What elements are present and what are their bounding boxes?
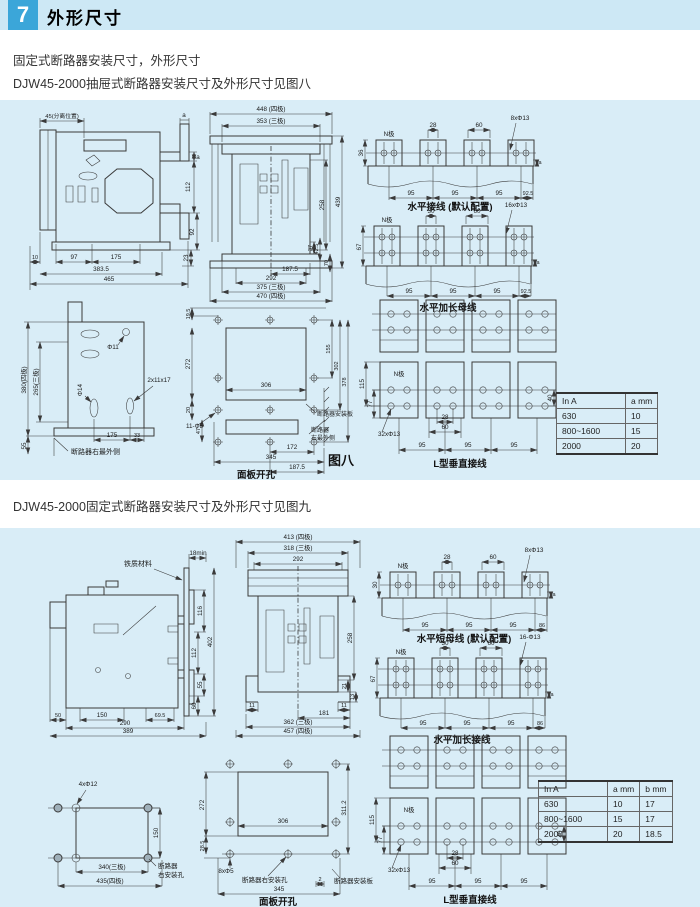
dim-label: 116 bbox=[197, 605, 204, 616]
dim-label: 16-Φ13 bbox=[519, 634, 541, 641]
drawing-caption: L型垂直接线 bbox=[443, 894, 497, 906]
dim-label: 95 bbox=[464, 442, 472, 449]
dim-label: 413 (四极) bbox=[283, 532, 312, 541]
dim-label: 172 bbox=[287, 444, 298, 451]
cell: 630 bbox=[539, 797, 608, 812]
dim-label: 28.5 bbox=[200, 841, 206, 852]
cell: 20 bbox=[608, 827, 640, 843]
dim-label: 95 bbox=[449, 288, 457, 295]
dim-label: 375 (三极) bbox=[256, 282, 285, 291]
dim-label: 95 bbox=[463, 720, 471, 727]
dim-label: 19.5 bbox=[186, 309, 192, 320]
dim-label: N极 bbox=[384, 129, 396, 138]
dim-label: 36 bbox=[358, 149, 365, 157]
dim-label: N极 bbox=[404, 805, 416, 814]
drawing-note: 断路器右安装孔 bbox=[242, 875, 288, 884]
cell: 800~1600 bbox=[557, 424, 626, 439]
dim-label: 86 bbox=[537, 721, 543, 727]
drawing-note: 断路器安装板 bbox=[317, 410, 353, 418]
dim-label: 95 bbox=[465, 622, 473, 629]
dim-label: 32xΦ13 bbox=[378, 431, 401, 438]
dim-label: 457 (四极) bbox=[283, 726, 312, 735]
dim-label: 95 bbox=[405, 288, 413, 295]
dim-label: 92 bbox=[189, 228, 196, 236]
dim-label: 380(四极) bbox=[19, 366, 28, 393]
dim-label: 21 bbox=[342, 683, 348, 689]
drawing-note: 断路器 bbox=[158, 861, 178, 870]
dim-label: 60 bbox=[487, 640, 495, 647]
dim-label: N极 bbox=[382, 215, 394, 224]
dim-label: 389 bbox=[123, 728, 134, 735]
dim-label: 33 bbox=[134, 433, 140, 439]
dim-label: 70 bbox=[324, 260, 330, 266]
dim-label: 60 bbox=[473, 208, 481, 215]
dim-label: 8xΦ13 bbox=[525, 547, 544, 554]
cell: 800~1600 bbox=[539, 812, 608, 827]
cell: a mm bbox=[626, 393, 658, 409]
dim-label: 2 bbox=[318, 877, 321, 883]
cell: 630 bbox=[557, 409, 626, 424]
dim-label: 435(四极) bbox=[96, 876, 123, 885]
dim-label: 28 bbox=[429, 122, 437, 129]
dim-label: 28 bbox=[443, 554, 451, 561]
cell: 18.5 bbox=[640, 827, 672, 843]
dim-label: 67 bbox=[356, 243, 363, 251]
dim-label: 95 bbox=[493, 288, 501, 295]
dim-label: 4xΦ12 bbox=[79, 781, 98, 788]
dim-label: 258 bbox=[319, 199, 326, 210]
dim-label: 292 bbox=[293, 556, 304, 563]
fig9-mounting-holes-drawing: 4xΦ12 150 340(三极) 435(四极) 断路器 右安装孔 bbox=[28, 760, 196, 900]
dim-label: 13 bbox=[350, 694, 356, 700]
dim-label: a bbox=[182, 112, 186, 119]
dim-label: 150 bbox=[97, 712, 108, 719]
dim-label: 448 (四极) bbox=[256, 104, 285, 113]
dim-label: 86 bbox=[539, 623, 545, 629]
dim-label: 465 bbox=[104, 276, 115, 283]
dim-label: 95 bbox=[419, 720, 427, 727]
dim-label: 345 bbox=[266, 454, 277, 461]
fig8-mounting-plate-drawing: Φ11 Φ14 2x11x17 380(四极) 265(三极) 55 175 3… bbox=[18, 294, 186, 458]
dim-label: 95 bbox=[428, 878, 436, 885]
dim-label: 69.5 bbox=[155, 713, 166, 719]
dim-label: Φ11 bbox=[107, 344, 119, 351]
drawing-caption: 面板开孔 bbox=[259, 896, 298, 907]
dim-label: 258 bbox=[347, 632, 354, 643]
drawing-note: 右最外侧 bbox=[311, 434, 335, 442]
section-header: 7 外形尺寸 bbox=[0, 0, 700, 30]
drawing-note: 右安装孔 bbox=[158, 870, 185, 879]
dim-label: 378 bbox=[342, 377, 348, 386]
dim-label: 306 bbox=[261, 382, 272, 389]
dim-label: 55 bbox=[197, 681, 204, 689]
cell: 17 bbox=[640, 812, 672, 827]
cell: a mm bbox=[608, 781, 640, 797]
dim-label: 353 (三极) bbox=[256, 116, 285, 125]
dim-label: 95 bbox=[507, 720, 515, 727]
dim-label: N极 bbox=[398, 561, 410, 570]
fig9-side-view-drawing: 18min 铁质材料 116 112 55 60 402 50 150 69.5… bbox=[28, 540, 220, 738]
catalog-page: 7 外形尺寸 固定式断路器安装尺寸，外形尺寸 DJW45-2000抽屉式断路器安… bbox=[0, 0, 700, 907]
dim-label: 95 bbox=[510, 442, 518, 449]
dim-label: 28 bbox=[451, 850, 459, 857]
drawing-note: 铁质材料 bbox=[124, 559, 152, 568]
dim-label: 30 bbox=[441, 640, 449, 647]
figure9-panel: 18min 铁质材料 116 112 55 60 402 50 150 69.5… bbox=[0, 528, 700, 907]
fig8-front-view-drawing: 448 (四极) 353 (三极) 439 258 37 42.5 70 187… bbox=[196, 102, 346, 304]
dim-label: 272 bbox=[185, 358, 192, 369]
dim-label: 383.5 bbox=[93, 266, 109, 273]
dim-label: 95 bbox=[474, 878, 482, 885]
dim-label: a bbox=[538, 160, 542, 166]
dim-label: 150 bbox=[153, 827, 160, 838]
fig8-l-vertical-drawing: N极 115 77 40 32xΦ13 28 60 95 95 95 L型垂直接… bbox=[358, 296, 563, 470]
dim-label: 16xΦ13 bbox=[505, 202, 528, 209]
dim-label: 115 bbox=[359, 378, 366, 389]
fig9-current-table: In Aa mmb mm 6301017 800~16001517 200020… bbox=[538, 780, 673, 843]
drawing-caption: 面板开孔 bbox=[237, 469, 276, 481]
dim-label: 23 bbox=[183, 254, 190, 262]
dim-label: 112 bbox=[191, 647, 198, 658]
dim-label: 439 bbox=[335, 196, 342, 207]
dim-label: 302 bbox=[334, 361, 340, 370]
figure8-panel: 45(分离位置) a a 112 92 23 10 97 175 383.5 4… bbox=[0, 100, 700, 480]
cell: b mm bbox=[640, 781, 672, 797]
dim-label: 42.5 bbox=[314, 244, 320, 255]
dim-label: 60 bbox=[475, 122, 483, 129]
dim-label: 30 bbox=[372, 581, 379, 589]
dim-label: 10 bbox=[32, 255, 38, 261]
dim-label: 11 bbox=[249, 703, 255, 709]
dim-label: 187.5 bbox=[282, 266, 298, 273]
cell: In A bbox=[539, 781, 608, 797]
cell: 17 bbox=[640, 797, 672, 812]
fig9-panel-cutout-drawing: 272 28.5 306 311.2 8xΦ5 断路器右安装孔 2 断路器安装板… bbox=[190, 742, 375, 906]
cell: 10 bbox=[626, 409, 658, 424]
fig8-side-view-drawing: 45(分离位置) a a 112 92 23 10 97 175 383.5 4… bbox=[22, 108, 200, 296]
intro-line-1: 固定式断路器安装尺寸，外形尺寸 bbox=[13, 50, 201, 69]
dim-label: a bbox=[536, 260, 540, 266]
dim-label: 18min bbox=[189, 550, 207, 557]
dim-label: 95 bbox=[418, 442, 426, 449]
fig8-current-table: In Aa mm 63010 800~160015 200020 bbox=[556, 392, 658, 455]
dim-label: 8xΦ5 bbox=[218, 868, 234, 875]
drawing-note: 断路器安装板 bbox=[334, 876, 374, 885]
fig8-horizontal-busbar-default-drawing: N极 28 60 8xΦ13 36 a 95 95 95 92.5 水平接线 (… bbox=[358, 110, 543, 212]
dim-label: 55 bbox=[21, 442, 28, 450]
dim-label: 181 bbox=[319, 710, 330, 717]
dim-label: 60 bbox=[451, 860, 459, 867]
dim-label: 60 bbox=[191, 702, 198, 710]
dim-label: 112 bbox=[185, 181, 192, 192]
cell: 2000 bbox=[539, 827, 608, 843]
dim-label: 290 bbox=[120, 720, 131, 727]
dim-label: 97 bbox=[70, 254, 78, 261]
drawing-caption: L型垂直接线 bbox=[433, 458, 487, 470]
dim-label: 2x11x17 bbox=[147, 377, 171, 384]
dim-label: 318 (三极) bbox=[283, 543, 312, 552]
dim-label: 187.5 bbox=[289, 464, 305, 471]
cell: 2000 bbox=[557, 439, 626, 455]
dim-label: 92.5 bbox=[523, 191, 534, 197]
dim-label: 95 bbox=[451, 190, 459, 197]
dim-label: 67 bbox=[370, 675, 377, 683]
dim-label: 362 (三极) bbox=[283, 717, 312, 726]
dim-label: 92.5 bbox=[521, 289, 532, 295]
dim-label: 155 bbox=[326, 344, 332, 353]
dim-label: 30 bbox=[427, 208, 435, 215]
cell: 10 bbox=[608, 797, 640, 812]
dim-label: 265(三极) bbox=[31, 368, 40, 395]
dim-label: 50 bbox=[55, 713, 61, 719]
dim-label: N极 bbox=[394, 369, 406, 378]
dim-label: 340(三极) bbox=[98, 862, 125, 871]
dim-label: 95 bbox=[520, 878, 528, 885]
section-number: 7 bbox=[8, 0, 38, 30]
fig9-front-view-drawing: 413 (四极) 318 (三极) 292 258 21 13 11 11 18… bbox=[226, 532, 371, 742]
dim-label: 175 bbox=[111, 254, 122, 261]
dim-label: 95 bbox=[495, 190, 503, 197]
dim-label: 77 bbox=[367, 400, 374, 408]
dim-label: 402 bbox=[207, 636, 214, 647]
intro-line-2: DJW45-2000抽屉式断路器安装尺寸及外形尺寸见图八 bbox=[13, 73, 311, 92]
cell: 20 bbox=[626, 439, 658, 455]
fig9-horizontal-extended-drawing: N极 30 60 16-Φ13 67 a 95 95 95 86 水平加长接线 bbox=[370, 632, 555, 746]
dim-label: N极 bbox=[396, 647, 408, 656]
dim-label: 95 bbox=[421, 622, 429, 629]
dim-label: 345 bbox=[274, 886, 285, 893]
dim-label: 175 bbox=[107, 432, 118, 439]
dim-label: a bbox=[552, 592, 556, 598]
dim-label: 95 bbox=[509, 622, 517, 629]
cell: 15 bbox=[608, 812, 640, 827]
dim-label: 292 bbox=[266, 275, 277, 282]
dim-label: 40 bbox=[547, 394, 554, 402]
dim-label: 60 bbox=[441, 424, 449, 431]
page-title: 外形尺寸 bbox=[47, 4, 123, 29]
dim-label: 95 bbox=[407, 190, 415, 197]
fig9-horizontal-short-busbar-drawing: N极 28 60 8xΦ13 30 a 95 95 95 86 水平短母线 (默… bbox=[372, 542, 557, 644]
dim-label: Φ14 bbox=[77, 383, 84, 396]
dim-label: 20 bbox=[186, 407, 192, 413]
dim-label: 11 bbox=[341, 703, 347, 709]
dim-label: 45(分离位置) bbox=[45, 112, 79, 120]
dim-label: 11-Φ5 bbox=[186, 423, 204, 430]
dim-label: 28 bbox=[441, 414, 449, 421]
dim-label: 32xΦ13 bbox=[388, 867, 411, 874]
dim-label: 60 bbox=[489, 554, 497, 561]
drawing-note: 断路器右最外侧 bbox=[71, 447, 120, 456]
dim-label: 8xΦ13 bbox=[511, 115, 530, 122]
figure8-caption: 图八 bbox=[328, 450, 354, 469]
intro-line-3: DJW45-2000固定式断路器安装尺寸及外形尺寸见图九 bbox=[13, 496, 311, 515]
cell: In A bbox=[557, 393, 626, 409]
dim-label: 311.2 bbox=[341, 800, 348, 816]
dim-label: 306 bbox=[278, 818, 289, 825]
dim-label: 77 bbox=[377, 836, 384, 844]
dim-label: 272 bbox=[199, 799, 206, 810]
cell: 15 bbox=[626, 424, 658, 439]
dim-label: a bbox=[550, 692, 554, 698]
